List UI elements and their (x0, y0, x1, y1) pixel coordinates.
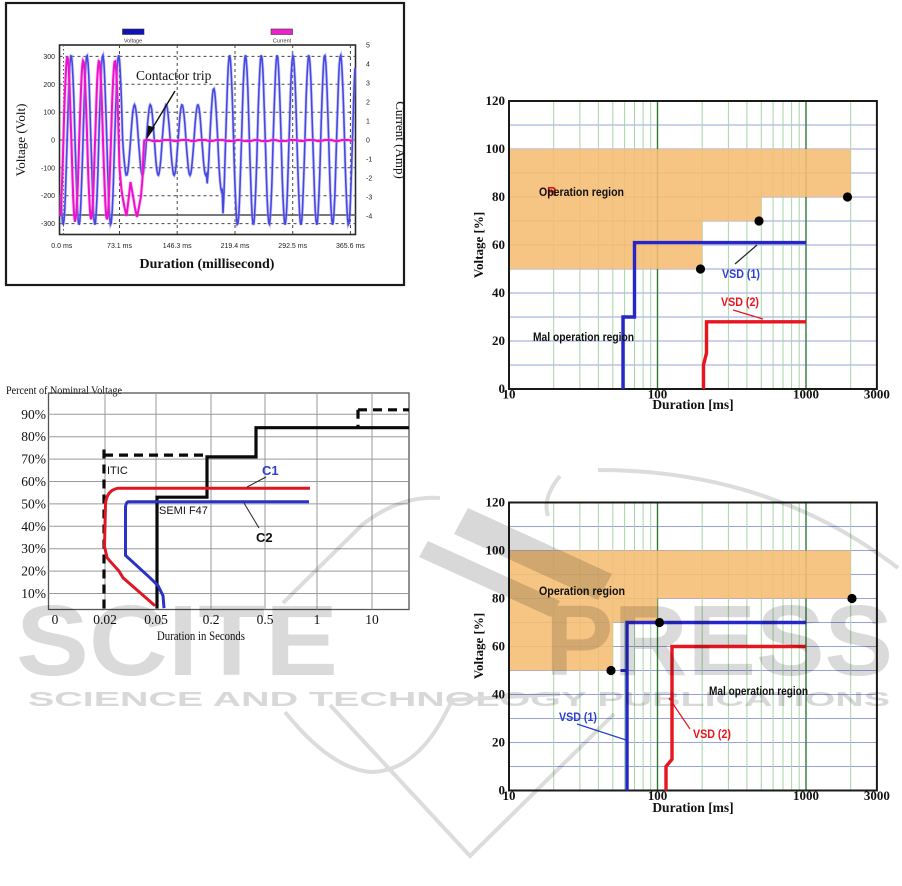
svg-text:SCITE: SCITE (16, 585, 338, 697)
svg-text:PRESS: PRESS (545, 585, 893, 697)
